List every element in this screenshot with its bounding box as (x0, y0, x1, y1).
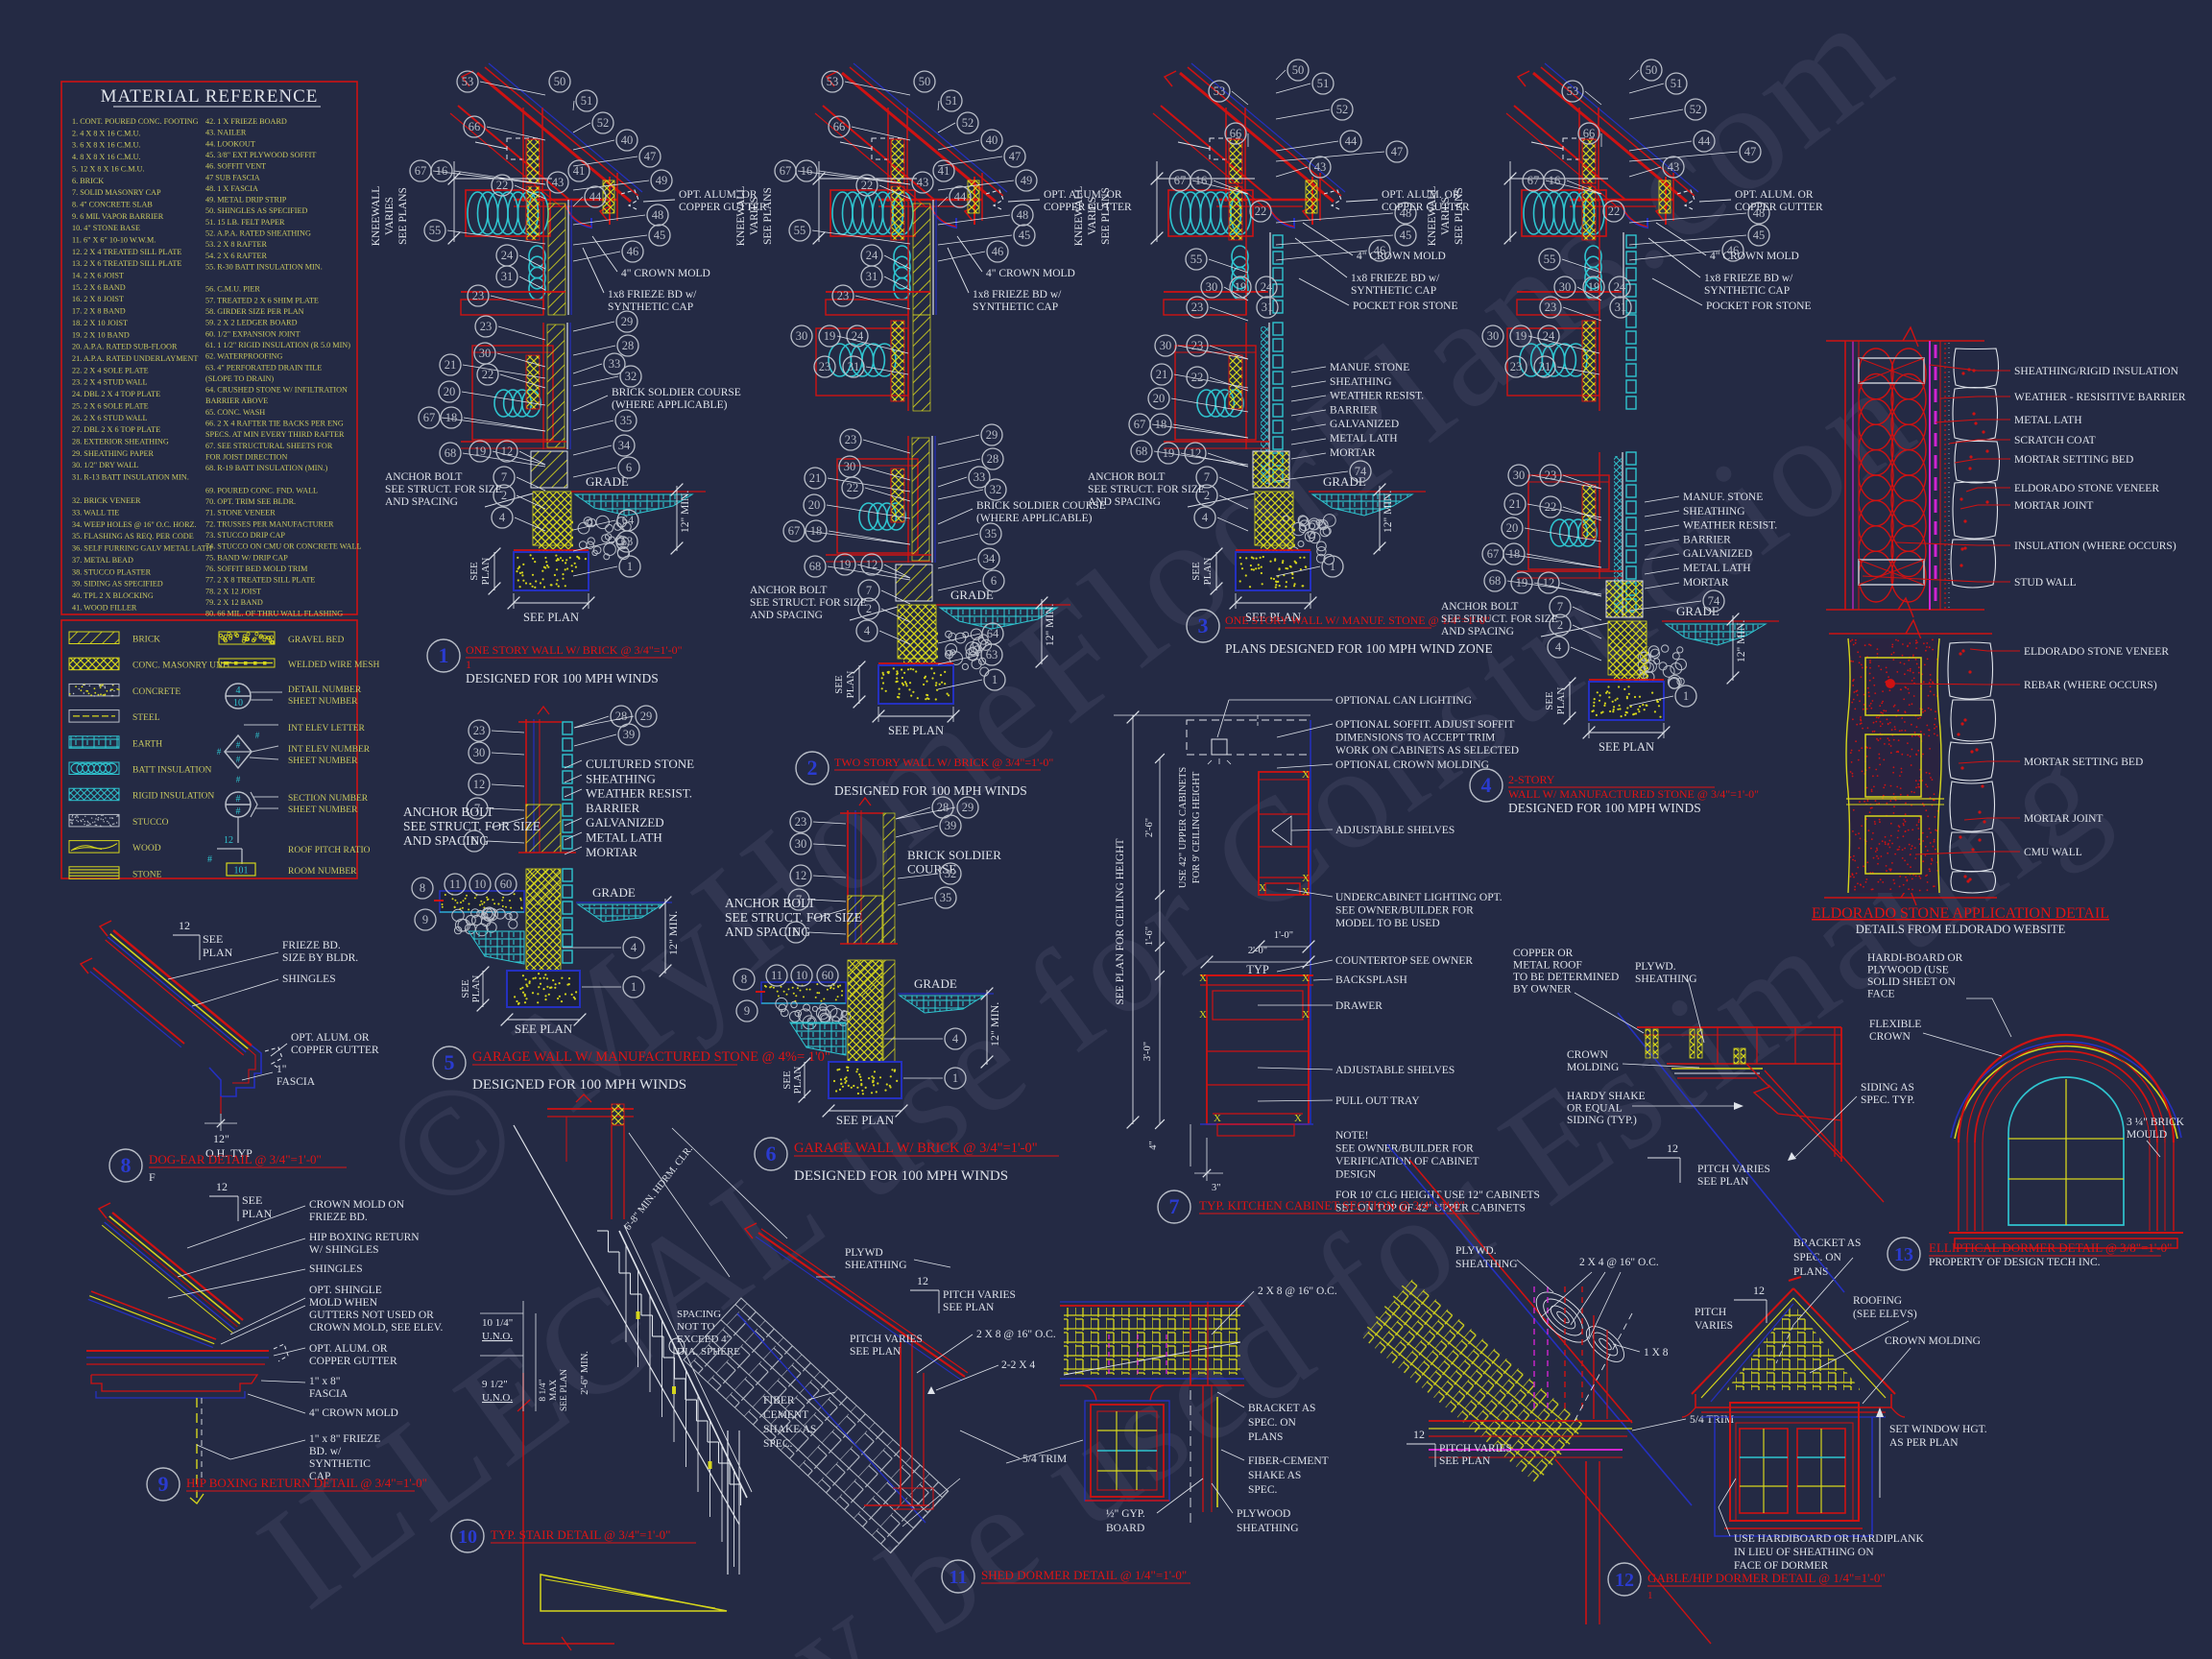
svg-text:7: 7 (1557, 600, 1563, 613)
svg-text:55. R-30 BATT INSULATION MIN.: 55. R-30 BATT INSULATION MIN. (205, 262, 323, 271)
svg-text:23: 23 (819, 360, 831, 373)
svg-text:51. 15 LB. FELT PAPER: 51. 15 LB. FELT PAPER (205, 218, 285, 227)
svg-text:31: 31 (501, 270, 514, 283)
svg-text:CROWN: CROWN (1869, 1031, 1911, 1043)
svg-text:12" MIN.: 12" MIN. (988, 1002, 1001, 1046)
svg-text:FRIEZE BD.: FRIEZE BD. (309, 1212, 368, 1223)
svg-text:19: 19 (824, 329, 836, 343)
svg-text:22: 22 (482, 368, 494, 381)
svg-text:71. STONE VENEER: 71. STONE VENEER (205, 509, 276, 517)
svg-text:SPEC.: SPEC. (1248, 1484, 1277, 1496)
svg-text:25. 2 X 6 SOLE PLATE: 25. 2 X 6 SOLE PLATE (72, 401, 149, 410)
svg-text:#: # (236, 806, 241, 817)
svg-text:24. DBL 2 X 4 TOP PLATE: 24. DBL 2 X 4 TOP PLATE (72, 390, 160, 398)
svg-text:40: 40 (986, 133, 998, 147)
svg-text:1x8 FRIEZE BD w/: 1x8 FRIEZE BD w/ (973, 289, 1062, 301)
svg-text:47: 47 (1744, 145, 1757, 158)
svg-text:19: 19 (1588, 280, 1600, 294)
svg-text:19: 19 (1516, 576, 1528, 589)
svg-text:PLANS DESIGNED FOR 100 MPH WIN: PLANS DESIGNED FOR 100 MPH WIND ZONE (1225, 641, 1493, 656)
svg-text:VARIES: VARIES (749, 197, 760, 235)
svg-text:ELLIPTICAL DORMER DETAIL @ 3/8: ELLIPTICAL DORMER DETAIL @ 3/8"=1'-0" (1929, 1240, 2172, 1255)
svg-text:2-STORY: 2-STORY (1508, 773, 1555, 786)
svg-text:PITCH VARIES: PITCH VARIES (1439, 1443, 1512, 1455)
svg-text:BRICK SOLDIER: BRICK SOLDIER (907, 848, 1001, 862)
svg-text:67: 67 (1174, 174, 1187, 187)
svg-text:GALVANIZED: GALVANIZED (1330, 419, 1399, 430)
svg-text:37. METAL BEAD: 37. METAL BEAD (72, 556, 133, 565)
svg-text:X: X (1302, 1009, 1310, 1021)
svg-text:12: 12 (795, 869, 807, 882)
svg-text:35: 35 (940, 891, 952, 904)
svg-text:MANUF. STONE: MANUF. STONE (1330, 362, 1409, 373)
svg-text:SHEET NUMBER: SHEET NUMBER (288, 757, 358, 766)
svg-text:49. METAL DRIP STRIP: 49. METAL DRIP STRIP (205, 196, 287, 204)
svg-text:24: 24 (1261, 280, 1273, 294)
svg-text:STONE: STONE (132, 870, 162, 879)
svg-text:67: 67 (780, 164, 792, 178)
svg-text:1: 1 (627, 560, 633, 573)
svg-text:1: 1 (1330, 560, 1335, 573)
svg-text:45: 45 (1400, 228, 1412, 242)
svg-text:11. 6" X 6" 10-10 W.W.M.: 11. 6" X 6" 10-10 W.W.M. (72, 236, 156, 245)
svg-text:66: 66 (833, 120, 846, 133)
svg-text:50: 50 (554, 75, 566, 88)
svg-text:4: 4 (952, 1032, 959, 1046)
svg-text:1": 1" (276, 1064, 286, 1075)
svg-text:CROWN MOLD ON: CROWN MOLD ON (309, 1199, 405, 1211)
svg-text:FIBER: FIBER (763, 1395, 795, 1407)
svg-text:4: 4 (631, 941, 637, 954)
svg-text:23: 23 (473, 724, 486, 737)
svg-text:34: 34 (983, 552, 996, 565)
svg-text:22: 22 (1545, 500, 1557, 514)
svg-text:COPPER GUTTER: COPPER GUTTER (1735, 202, 1823, 213)
svg-text:31: 31 (848, 360, 860, 373)
svg-text:FOR JOIST DIRECTION: FOR JOIST DIRECTION (205, 453, 287, 462)
svg-text:4" CROWN MOLD: 4" CROWN MOLD (986, 268, 1075, 279)
svg-text:47 SUB FASCIA: 47 SUB FASCIA (205, 173, 260, 181)
svg-text:PITCH: PITCH (1695, 1307, 1726, 1318)
svg-text:EARTH: EARTH (132, 739, 162, 749)
svg-text:62. WATERPROOFING: 62. WATERPROOFING (205, 352, 282, 361)
svg-text:DESIGNED FOR 100 MPH WINDS: DESIGNED FOR 100 MPH WINDS (1508, 801, 1701, 815)
svg-text:74: 74 (1708, 594, 1720, 608)
svg-text:PLYWD: PLYWD (845, 1247, 883, 1259)
svg-text:3'-0": 3'-0" (1142, 1042, 1153, 1061)
svg-text:10. 4" STONE BASE: 10. 4" STONE BASE (72, 224, 140, 232)
svg-text:12" MIN.: 12" MIN. (680, 491, 691, 533)
svg-text:31: 31 (1262, 301, 1274, 314)
svg-text:30. 1/2" DRY WALL: 30. 1/2" DRY WALL (72, 461, 138, 469)
svg-text:ADJUSTABLE SHELVES: ADJUSTABLE SHELVES (1335, 1065, 1455, 1076)
svg-text:11: 11 (449, 878, 461, 891)
svg-text:1x8 FRIEZE BD w/: 1x8 FRIEZE BD w/ (1704, 273, 1793, 284)
svg-text:5. 12 X 8 X 16 C.M.U.: 5. 12 X 8 X 16 C.M.U. (72, 164, 145, 173)
svg-text:PITCH VARIES: PITCH VARIES (850, 1334, 923, 1345)
svg-text:31: 31 (1539, 360, 1551, 373)
svg-text:SOLID SHEET ON: SOLID SHEET ON (1867, 976, 1956, 988)
svg-text:#: # (236, 794, 241, 805)
svg-text:51: 51 (1317, 77, 1330, 90)
svg-text:67: 67 (415, 164, 427, 178)
svg-text:METAL LATH: METAL LATH (1683, 563, 1751, 574)
svg-text:SHINGLES: SHINGLES (309, 1263, 363, 1275)
svg-text:BATT INSULATION: BATT INSULATION (132, 766, 212, 776)
svg-text:HARDY SHAKE: HARDY SHAKE (1567, 1091, 1646, 1102)
svg-text:76. SOFFIT BED MOLD TRIM: 76. SOFFIT BED MOLD TRIM (205, 565, 308, 573)
svg-text:SYNTHETIC CAP: SYNTHETIC CAP (1351, 285, 1436, 297)
svg-text:TO BE DETERMINED: TO BE DETERMINED (1513, 972, 1619, 983)
svg-text:12: 12 (1543, 576, 1555, 589)
svg-text:10: 10 (233, 698, 243, 709)
svg-text:4: 4 (1202, 511, 1209, 524)
svg-text:SIDING AS: SIDING AS (1861, 1082, 1914, 1094)
svg-text:19: 19 (839, 558, 852, 571)
svg-text:18. 2 X 10 JOIST: 18. 2 X 10 JOIST (72, 319, 128, 327)
svg-text:MORTAR JOINT: MORTAR JOINT (2014, 500, 2093, 512)
svg-text:35: 35 (620, 414, 633, 427)
svg-text:MORTAR SETTING BED: MORTAR SETTING BED (2024, 757, 2143, 768)
svg-text:DESIGNED FOR 100 MPH WINDS: DESIGNED FOR 100 MPH WINDS (794, 1168, 1008, 1184)
svg-text:WOOD: WOOD (132, 844, 161, 854)
svg-text:53: 53 (1567, 84, 1579, 98)
svg-text:SEE STRUCT. FOR SIZE: SEE STRUCT. FOR SIZE (385, 484, 502, 495)
svg-text:27. DBL 2 X 6 TOP PLATE: 27. DBL 2 X 6 TOP PLATE (72, 425, 160, 434)
svg-text:40. TPL 2 X BLOCKING: 40. TPL 2 X BLOCKING (72, 591, 154, 600)
svg-text:PLYWOOD (USE: PLYWOOD (USE (1867, 965, 1949, 976)
svg-text:4. 8 X 8 X 16 C.M.U.: 4. 8 X 8 X 16 C.M.U. (72, 153, 140, 161)
svg-text:52. A.P.A. RATED SHEATHING: 52. A.P.A. RATED SHEATHING (205, 229, 311, 238)
svg-text:11: 11 (950, 1567, 968, 1588)
svg-text:BD. w/: BD. w/ (309, 1446, 342, 1457)
svg-text:67: 67 (1134, 418, 1146, 431)
svg-text:2'-0": 2'-0" (1248, 946, 1267, 956)
svg-text:2. 4 X 8 X 16 C.M.U.: 2. 4 X 8 X 16 C.M.U. (72, 129, 140, 137)
svg-text:2'-6" MIN.: 2'-6" MIN. (580, 1351, 590, 1395)
svg-text:7: 7 (866, 584, 872, 597)
svg-text:29: 29 (962, 801, 974, 814)
svg-text:55: 55 (429, 224, 442, 237)
svg-text:43: 43 (1314, 160, 1327, 174)
svg-text:3. 6 X 8 X 16 C.M.U.: 3. 6 X 8 X 16 C.M.U. (72, 141, 140, 150)
svg-text:66: 66 (1230, 127, 1242, 140)
svg-text:SEE: SEE (833, 675, 845, 694)
svg-text:44: 44 (589, 190, 602, 204)
svg-text:OPT. ALUM. OR: OPT. ALUM. OR (1735, 189, 1814, 201)
svg-text:SPEC.: SPEC. (763, 1438, 792, 1450)
svg-text:33. WALL TIE: 33. WALL TIE (72, 509, 119, 517)
svg-text:STUD WALL: STUD WALL (2014, 577, 2077, 589)
svg-text:19: 19 (1515, 329, 1527, 343)
svg-text:(WHERE APPLICABLE): (WHERE APPLICABLE) (976, 513, 1093, 524)
svg-text:53: 53 (827, 75, 839, 88)
svg-text:63: 63 (621, 535, 634, 548)
svg-text:67: 67 (1527, 174, 1540, 187)
svg-text:CONC. MASONRY UNIT: CONC. MASONRY UNIT (132, 661, 231, 671)
svg-text:VARIES: VARIES (1440, 197, 1452, 235)
svg-text:SHEATHING: SHEATHING (586, 771, 656, 785)
svg-text:6: 6 (626, 461, 632, 474)
svg-text:28. EXTERIOR SHEATHING: 28. EXTERIOR SHEATHING (72, 437, 169, 445)
svg-text:52: 52 (597, 116, 610, 130)
svg-text:AND SPACING: AND SPACING (385, 496, 458, 508)
svg-text:12" MIN.: 12" MIN. (1736, 620, 1747, 662)
svg-text:FASCIA: FASCIA (309, 1388, 349, 1400)
svg-text:SHEATHING/RIGID INSULATION: SHEATHING/RIGID INSULATION (2014, 366, 2179, 377)
svg-text:DOG-EAR DETAIL @ 3/4"=1': DOG-EAR DETAIL @ 3/4"=1'-0" (149, 1152, 322, 1166)
svg-text:12: 12 (216, 1180, 228, 1193)
svg-text:39: 39 (623, 728, 636, 741)
svg-text:8. 4" CONCRETE SLAB: 8. 4" CONCRETE SLAB (72, 200, 153, 208)
svg-text:SYNTHETIC CAP: SYNTHETIC CAP (608, 301, 693, 313)
svg-text:SEE STRUCT. FOR SIZE: SEE STRUCT. FOR SIZE (1088, 484, 1205, 495)
svg-text:32: 32 (990, 483, 1002, 496)
svg-text:68: 68 (1489, 574, 1502, 588)
svg-text:PLAN: PLAN (1555, 687, 1567, 715)
svg-text:ELDORADO STONE APPLICATION DET: ELDORADO STONE APPLICATION DETAIL (1812, 905, 2109, 922)
svg-text:BRICK: BRICK (132, 636, 160, 645)
svg-text:X: X (1259, 882, 1266, 894)
svg-text:1: 1 (992, 673, 998, 686)
svg-text:42. 1 X FRIEZE BOARD: 42. 1 X FRIEZE BOARD (205, 117, 287, 126)
svg-text:X: X (1302, 769, 1310, 781)
svg-text:SEE PLAN: SEE PLAN (888, 724, 944, 737)
svg-text:WEATHER RESIST.: WEATHER RESIST. (1683, 520, 1777, 532)
svg-text:28: 28 (987, 452, 999, 466)
svg-text:41: 41 (938, 164, 950, 178)
svg-text:PLAN: PLAN (242, 1207, 273, 1220)
svg-text:COPPER GUTTER: COPPER GUTTER (309, 1356, 397, 1367)
svg-text:SEE PLANS: SEE PLANS (762, 187, 774, 245)
svg-text:VARIES: VARIES (1695, 1320, 1733, 1332)
svg-text:45. 3/8" EXT PLYWOOD SOFFIT: 45. 3/8" EXT PLYWOOD SOFFIT (205, 151, 316, 159)
svg-text:SEE PLAN: SEE PLAN (523, 611, 579, 624)
svg-text:MOLD WHEN: MOLD WHEN (309, 1297, 378, 1309)
svg-text:30: 30 (1487, 329, 1500, 343)
svg-text:(SEE ELEVS): (SEE ELEVS) (1853, 1309, 1917, 1320)
svg-text:1: 1 (1647, 1590, 1653, 1601)
svg-text:32: 32 (625, 370, 637, 383)
svg-text:16: 16 (436, 164, 448, 178)
svg-text:15. 2 X 6 BAND: 15. 2 X 6 BAND (72, 283, 126, 292)
svg-text:12: 12 (1753, 1284, 1765, 1297)
svg-text:3 ¼" BRICK: 3 ¼" BRICK (2127, 1117, 2185, 1128)
svg-text:X: X (1302, 973, 1310, 984)
svg-text:SHEET NUMBER: SHEET NUMBER (288, 697, 358, 707)
svg-text:TWO STORY WALL W/ BRICK @: TWO STORY WALL W/ BRICK @ 3/4"=1'-0" (834, 756, 1053, 769)
svg-text:SHEATHING: SHEATHING (1330, 376, 1392, 388)
svg-text:12. 2 X 4 TREATED SILL PLATE: 12. 2 X 4 TREATED SILL PLATE (72, 248, 181, 256)
svg-text:67. SEE STRUCTURAL SHEETS FOR: 67. SEE STRUCTURAL SHEETS FOR (205, 442, 333, 450)
svg-text:CROWN MOLD, SEE ELEV.: CROWN MOLD, SEE ELEV. (309, 1322, 444, 1334)
svg-text:22: 22 (1191, 371, 1204, 384)
svg-text:4" CROWN MOLD: 4" CROWN MOLD (1357, 251, 1446, 262)
svg-text:49: 49 (656, 174, 668, 187)
svg-text:1: 1 (952, 1071, 958, 1085)
svg-text:63. 4" PERFORATED DRAIN TILE: 63. 4" PERFORATED DRAIN TILE (205, 363, 322, 372)
svg-text:39: 39 (945, 819, 957, 832)
svg-text:44: 44 (1345, 134, 1358, 148)
svg-text:53: 53 (1214, 84, 1226, 98)
svg-text:50: 50 (919, 75, 931, 88)
svg-text:SEE OWNER/BUILDER FOR: SEE OWNER/BUILDER FOR (1335, 905, 1474, 917)
svg-text:AND SPACING: AND SPACING (403, 833, 489, 848)
svg-text:BRACKET AS: BRACKET AS (1248, 1403, 1315, 1414)
svg-text:ANCHOR BOLT: ANCHOR BOLT (1088, 471, 1165, 483)
svg-text:PLAN: PLAN (480, 558, 492, 586)
svg-text:VARIES: VARIES (384, 197, 396, 235)
svg-text:WALL W/ MANUFACTURED STONE @ 3: WALL W/ MANUFACTURED STONE @ 3/4"=1'-0" (1508, 787, 1759, 801)
svg-text:20: 20 (808, 498, 821, 512)
svg-text:44: 44 (1698, 134, 1711, 148)
svg-text:68: 68 (445, 446, 457, 460)
svg-text:16: 16 (801, 164, 813, 178)
svg-text:57. TREATED 2 X 6 SHIM PLATE: 57. TREATED 2 X 6 SHIM PLATE (205, 296, 319, 304)
svg-text:PLANS: PLANS (1793, 1266, 1828, 1278)
svg-text:ADJUSTABLE SHELVES: ADJUSTABLE SHELVES (1335, 825, 1455, 836)
svg-text:41. WOOD FILLER: 41. WOOD FILLER (72, 603, 137, 612)
svg-text:VERIFICATION OF CABINET: VERIFICATION OF CABINET (1335, 1156, 1479, 1167)
svg-text:X: X (1199, 1009, 1207, 1021)
svg-text:43: 43 (917, 176, 929, 189)
svg-text:STUCCO: STUCCO (132, 818, 169, 828)
svg-text:CEMENT: CEMENT (763, 1409, 808, 1421)
svg-text:12: 12 (866, 558, 878, 571)
svg-text:MATERIAL REFERENCE: MATERIAL REFERENCE (101, 86, 319, 107)
svg-text:DRAWER: DRAWER (1335, 1000, 1382, 1012)
svg-text:MORTAR: MORTAR (1330, 447, 1376, 459)
svg-text:MORTAR: MORTAR (586, 845, 637, 859)
svg-text:SEE PLAN: SEE PLAN (560, 1369, 569, 1411)
svg-text:23: 23 (1545, 469, 1557, 482)
svg-text:MOLDING: MOLDING (1567, 1062, 1619, 1073)
svg-text:40: 40 (621, 133, 634, 147)
svg-text:DESIGNED FOR 100 MPH WINDS: DESIGNED FOR 100 MPH WINDS (472, 1077, 686, 1093)
svg-text:U.N.O.: U.N.O. (482, 1392, 513, 1404)
svg-text:SEE: SEE (1544, 691, 1555, 710)
svg-text:34: 34 (618, 439, 631, 452)
svg-text:SHED DORMER DETAIL @ 1/4"=1'-0: SHED DORMER DETAIL @ 1/4"=1'-0" (981, 1568, 1187, 1582)
svg-text:66. 2 X 4 RAFTER TIE BACKS PE: 66. 2 X 4 RAFTER TIE BACKS PER ENG (205, 420, 344, 428)
svg-text:4: 4 (864, 624, 871, 637)
svg-text:20: 20 (1153, 392, 1166, 405)
svg-text:51: 51 (581, 94, 593, 108)
svg-text:RIGID INSULATION: RIGID INSULATION (132, 792, 214, 802)
svg-text:101: 101 (234, 866, 249, 877)
svg-text:45: 45 (1019, 228, 1031, 242)
svg-text:2'-6": 2'-6" (1144, 818, 1155, 837)
svg-text:4": 4" (1148, 1141, 1159, 1150)
svg-text:INT ELEV NUMBER: INT ELEV NUMBER (288, 745, 371, 755)
svg-text:23: 23 (1510, 360, 1523, 373)
svg-text:BY OWNER: BY OWNER (1513, 984, 1572, 996)
svg-text:CULTURED STONE: CULTURED STONE (586, 757, 694, 771)
svg-text:GUTTERS NOT USED OR: GUTTERS NOT USED OR (309, 1310, 434, 1321)
svg-text:1" x 8": 1" x 8" (309, 1376, 340, 1387)
svg-text:SEE PLAN: SEE PLAN (515, 1022, 573, 1036)
svg-text:METAL LATH: METAL LATH (1330, 433, 1398, 445)
svg-text:24: 24 (866, 249, 878, 262)
svg-text:28: 28 (937, 801, 950, 814)
svg-text:SHEATHING: SHEATHING (1237, 1523, 1299, 1534)
svg-text:PLAN: PLAN (792, 1067, 804, 1094)
svg-text:FACE: FACE (1867, 989, 1895, 1000)
svg-text:1: 1 (439, 643, 449, 667)
svg-text:OPT. SHINGLE: OPT. SHINGLE (309, 1285, 382, 1296)
svg-text:CMU WALL: CMU WALL (2024, 847, 2082, 858)
svg-text:SEE: SEE (242, 1193, 262, 1207)
svg-text:X: X (1199, 973, 1207, 984)
svg-text:SEE PLAN: SEE PLAN (1439, 1455, 1491, 1467)
svg-text:9: 9 (158, 1472, 169, 1496)
svg-text:32. BRICK VENEER: 32. BRICK VENEER (72, 496, 141, 505)
svg-text:CROWN MOLDING: CROWN MOLDING (1885, 1335, 1981, 1347)
svg-text:4" CROWN MOLD: 4" CROWN MOLD (309, 1407, 398, 1419)
svg-text:30: 30 (1206, 280, 1218, 294)
svg-text:SEE PLAN: SEE PLAN (943, 1302, 995, 1313)
svg-text:DETAIL NUMBER: DETAIL NUMBER (288, 685, 362, 695)
svg-text:54. 2 X 6 RAFTER: 54. 2 X 6 RAFTER (205, 252, 267, 260)
svg-text:44: 44 (954, 190, 967, 204)
svg-text:BACKSPLASH: BACKSPLASH (1335, 974, 1407, 986)
svg-text:MODEL TO BE USED: MODEL TO BE USED (1335, 918, 1440, 929)
svg-text:16: 16 (1549, 174, 1561, 187)
svg-text:1'-6": 1'-6" (1144, 926, 1155, 946)
svg-text:SPECS. AT MIN EVERY THIRD RAFT: SPECS. AT MIN EVERY THIRD RAFTER (205, 430, 345, 439)
svg-text:23: 23 (1545, 301, 1557, 314)
svg-text:SEE OWNER/BUILDER FOR: SEE OWNER/BUILDER FOR (1335, 1143, 1474, 1155)
svg-text:78. 2 X 12 JOIST: 78. 2 X 12 JOIST (205, 587, 261, 595)
svg-text:NOT TO: NOT TO (677, 1321, 714, 1333)
svg-text:8: 8 (121, 1153, 132, 1177)
svg-text:DETAILS FROM ELDORADO WEBSITE: DETAILS FROM ELDORADO WEBSITE (1856, 923, 2066, 936)
svg-text:SPEC. TYP.: SPEC. TYP. (1861, 1094, 1914, 1106)
svg-text:23: 23 (837, 289, 850, 302)
svg-text:12: 12 (1190, 446, 1202, 460)
svg-text:12: 12 (917, 1274, 928, 1287)
svg-text:GRADE: GRADE (914, 976, 957, 991)
svg-text:BARRIER ABOVE: BARRIER ABOVE (205, 397, 268, 405)
svg-text:BARRIER: BARRIER (586, 801, 640, 815)
svg-text:SEE: SEE (469, 562, 480, 581)
svg-text:50. SHINGLES AS SPECIFIED: 50. SHINGLES AS SPECIFIED (205, 206, 308, 215)
svg-text:41: 41 (573, 164, 586, 178)
svg-text:55: 55 (1190, 252, 1203, 266)
svg-text:79. 2 X 12 BAND: 79. 2 X 12 BAND (205, 598, 263, 607)
svg-text:58. GIRDER SIZE PER PLAN: 58. GIRDER SIZE PER PLAN (205, 307, 304, 316)
svg-text:SEE PLAN: SEE PLAN (836, 1113, 895, 1127)
svg-text:32: 32 (945, 867, 957, 880)
svg-text:PLAN: PLAN (845, 671, 856, 699)
svg-text:48: 48 (1017, 208, 1029, 222)
svg-text:X: X (1294, 1113, 1302, 1124)
svg-text:SPEC. ON: SPEC. ON (1793, 1252, 1842, 1263)
svg-text:SEE: SEE (203, 932, 223, 946)
svg-text:14. 2 X 6 JOIST: 14. 2 X 6 JOIST (72, 272, 124, 280)
svg-text:16. 2 X 8 JOIST: 16. 2 X 8 JOIST (72, 295, 124, 303)
svg-text:18: 18 (445, 411, 458, 424)
svg-text:23. 2 X 4 STUD WALL: 23. 2 X 4 STUD WALL (72, 378, 148, 387)
svg-text:29: 29 (986, 428, 998, 442)
svg-text:23: 23 (795, 815, 807, 829)
svg-text:30: 30 (844, 460, 856, 473)
svg-text:SPEC. ON: SPEC. ON (1248, 1417, 1297, 1429)
svg-text:AS PER PLAN: AS PER PLAN (1889, 1437, 1959, 1449)
svg-text:U.N.O.: U.N.O. (482, 1331, 513, 1342)
svg-text:49: 49 (1021, 174, 1033, 187)
svg-text:30: 30 (479, 347, 492, 360)
